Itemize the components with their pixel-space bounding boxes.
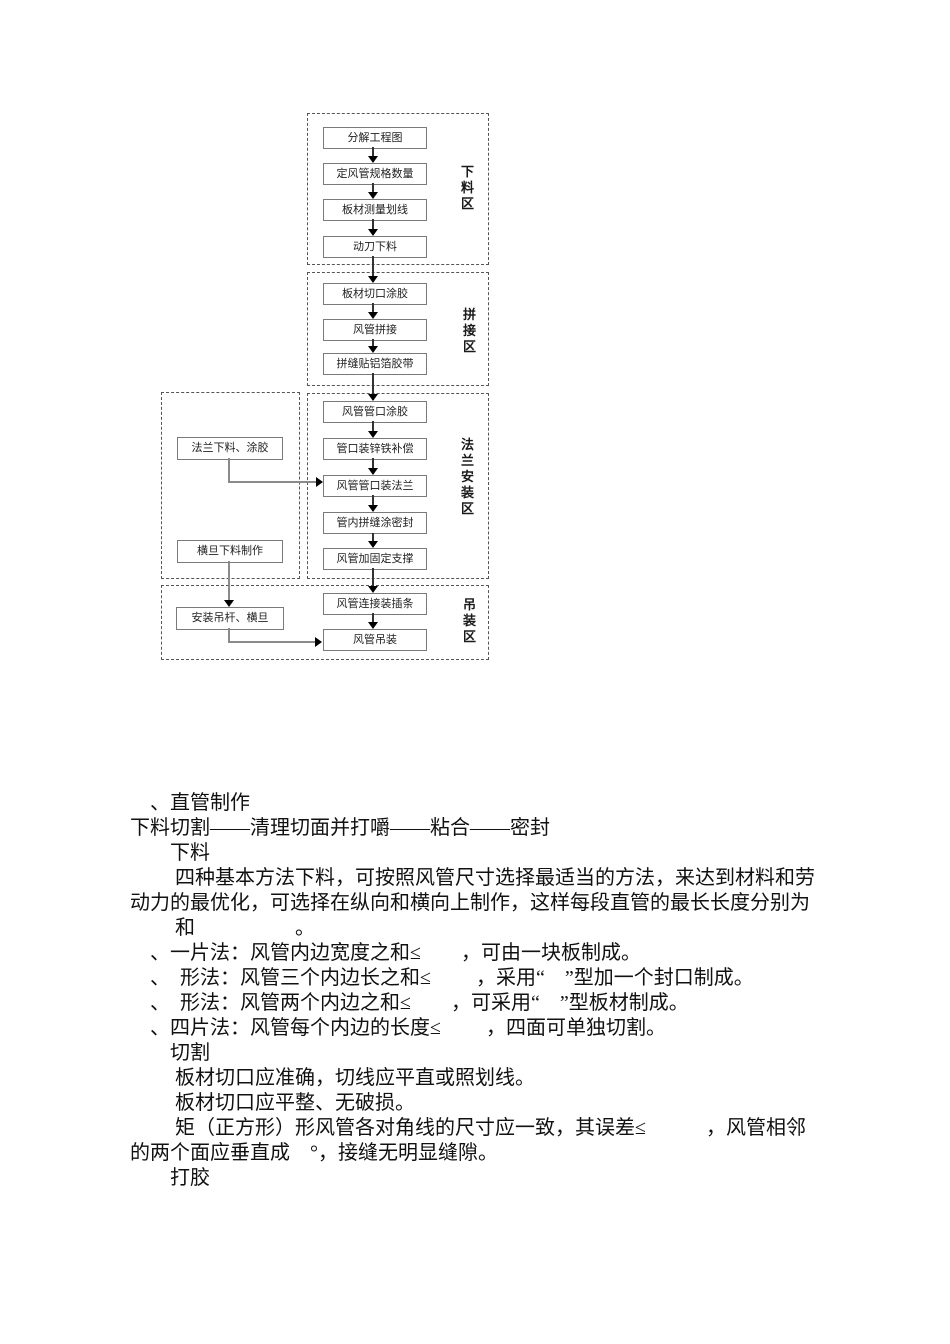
flow-step-box: 分解工程图 xyxy=(323,127,427,149)
paragraph-line: 打胶 xyxy=(130,1166,850,1191)
flow-step-box: 板材切口涂胶 xyxy=(323,283,427,305)
flow-step-box: 风管管口装法兰 xyxy=(323,475,427,497)
paragraph-line: 、直管制作 xyxy=(130,791,850,816)
arrow-down-icon xyxy=(368,192,378,199)
arrow-down-icon xyxy=(368,431,378,438)
paragraph-line: 的两个面应垂直成 °，接缝无明显缝隙。 xyxy=(130,1141,850,1166)
flow-side-step-box: 横旦下料制作 xyxy=(177,540,283,563)
arrow-down-icon xyxy=(224,600,234,607)
flow-step-box: 板材测量划线 xyxy=(323,199,427,221)
paragraph-line: 下料切割——清理切面并打嚼——粘合——密封 xyxy=(130,816,850,841)
arrow-down-icon xyxy=(368,156,378,163)
zone-label-hoisting: 吊装区 xyxy=(462,597,477,645)
flow-step-box: 拼缝贴铝箔胶带 xyxy=(323,353,427,375)
paragraph-line: 四种基本方法下料，可按照风管尺寸选择最适当的方法，来达到材料和劳 xyxy=(130,866,850,891)
connector-line xyxy=(228,481,316,483)
connector-line xyxy=(228,458,230,482)
paragraph-line: 动力的最优化，可选择在纵向和横向上制作，这样每段直管的最长长度分别为 xyxy=(130,891,850,916)
zone-label-cutting: 下料区 xyxy=(460,164,475,212)
arrow-down-icon xyxy=(368,394,378,401)
connector-line xyxy=(372,568,374,587)
flow-step-box: 管口装锌铁补偿 xyxy=(323,438,427,460)
flow-step-box: 风管连接装插条 xyxy=(323,593,427,615)
connector-line xyxy=(372,373,374,395)
flow-step-box: 管内拼缝涂密封 xyxy=(323,512,427,534)
connector-line xyxy=(228,641,315,643)
flow-step-box: 风管吊装 xyxy=(323,629,427,651)
paragraph-line: 和 。 xyxy=(130,916,850,941)
paragraph-line: 、 形法：风管两个内边之和≤ ，可采用“ ”型板材制成。 xyxy=(130,991,850,1016)
paragraph-line: 板材切口应平整、无破损。 xyxy=(130,1091,850,1116)
paragraph-line: 板材切口应准确，切线应平直或照划线。 xyxy=(130,1066,850,1091)
arrow-down-icon xyxy=(368,586,378,593)
arrow-down-icon xyxy=(368,541,378,548)
arrow-right-icon xyxy=(315,637,322,647)
flow-step-box: 定风管规格数量 xyxy=(323,163,427,185)
flow-step-box: 风管管口涂胶 xyxy=(323,401,427,423)
flow-step-box: 动刀下料 xyxy=(323,236,427,258)
paragraph-line: 、一片法：风管内边宽度之和≤ ，可由一块板制成。 xyxy=(130,941,850,966)
paragraph-line: 切割 xyxy=(130,1041,850,1066)
paragraph-line: 下料 xyxy=(130,841,850,866)
arrow-down-icon xyxy=(368,276,378,283)
arrow-down-icon xyxy=(368,229,378,236)
arrow-down-icon xyxy=(368,622,378,629)
arrow-down-icon xyxy=(368,346,378,353)
zone-label-flange-install: 法兰安装区 xyxy=(460,437,475,517)
arrow-down-icon xyxy=(368,505,378,512)
zone-label-splicing: 拼接区 xyxy=(462,307,477,355)
document-page: 下料区 拼接区 法兰安装区 吊装区 分解工程图 定风管规格数量 板材测量划线 动… xyxy=(0,0,950,1344)
connector-line xyxy=(372,256,374,277)
connector-line xyxy=(228,561,230,600)
arrow-down-icon xyxy=(368,312,378,319)
arrow-down-icon xyxy=(368,468,378,475)
flow-step-box: 风管拼接 xyxy=(323,319,427,341)
arrow-right-icon xyxy=(316,477,323,487)
flow-side-step-box: 安装吊杆、横旦 xyxy=(176,607,284,630)
connector-line xyxy=(228,628,230,642)
paragraph-line: 、 形法：风管三个内边长之和≤ ，采用“ ”型加一个封口制成。 xyxy=(130,966,850,991)
paragraph-line: 、四片法：风管每个内边的长度≤ ，四面可单独切割。 xyxy=(130,1016,850,1041)
body-text: 、直管制作 下料切割——清理切面并打嚼——粘合——密封 下料 四种基本方法下料，… xyxy=(130,791,850,1191)
paragraph-line: 矩（正方形）形风管各对角线的尺寸应一致，其误差≤ ，风管相邻 xyxy=(130,1116,850,1141)
flow-side-step-box: 法兰下料、涂胶 xyxy=(177,437,283,460)
flow-step-box: 风管加固定支撑 xyxy=(323,548,427,570)
